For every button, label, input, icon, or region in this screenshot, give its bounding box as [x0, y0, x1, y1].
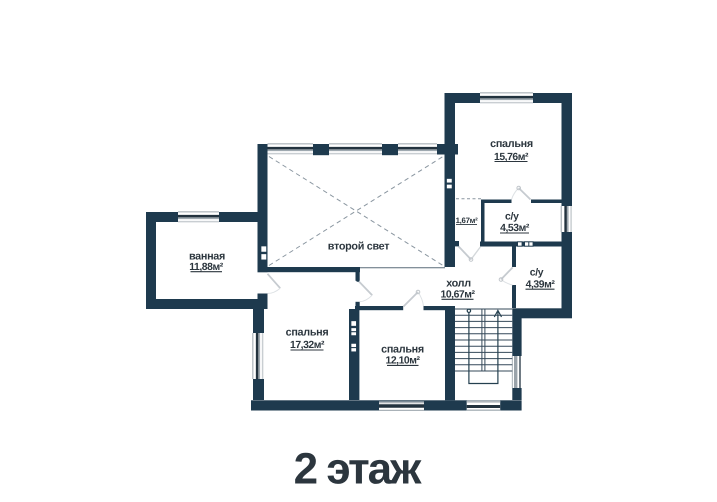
svg-text:спальня: спальня — [286, 327, 329, 339]
svg-text:второй свет: второй свет — [328, 240, 389, 252]
svg-text:с/у: с/у — [530, 267, 544, 278]
svg-text:спальня: спальня — [381, 343, 424, 355]
svg-text:спальня: спальня — [490, 138, 533, 150]
svg-text:ванная: ванная — [189, 251, 225, 263]
svg-text:2 этаж: 2 этаж — [294, 445, 422, 494]
svg-text:17,32м²: 17,32м² — [290, 340, 325, 351]
svg-text:холл: холл — [446, 277, 471, 289]
svg-text:1,67м²: 1,67м² — [456, 216, 478, 225]
svg-text:с/у: с/у — [505, 212, 519, 223]
svg-text:4,39м²: 4,39м² — [526, 279, 556, 290]
